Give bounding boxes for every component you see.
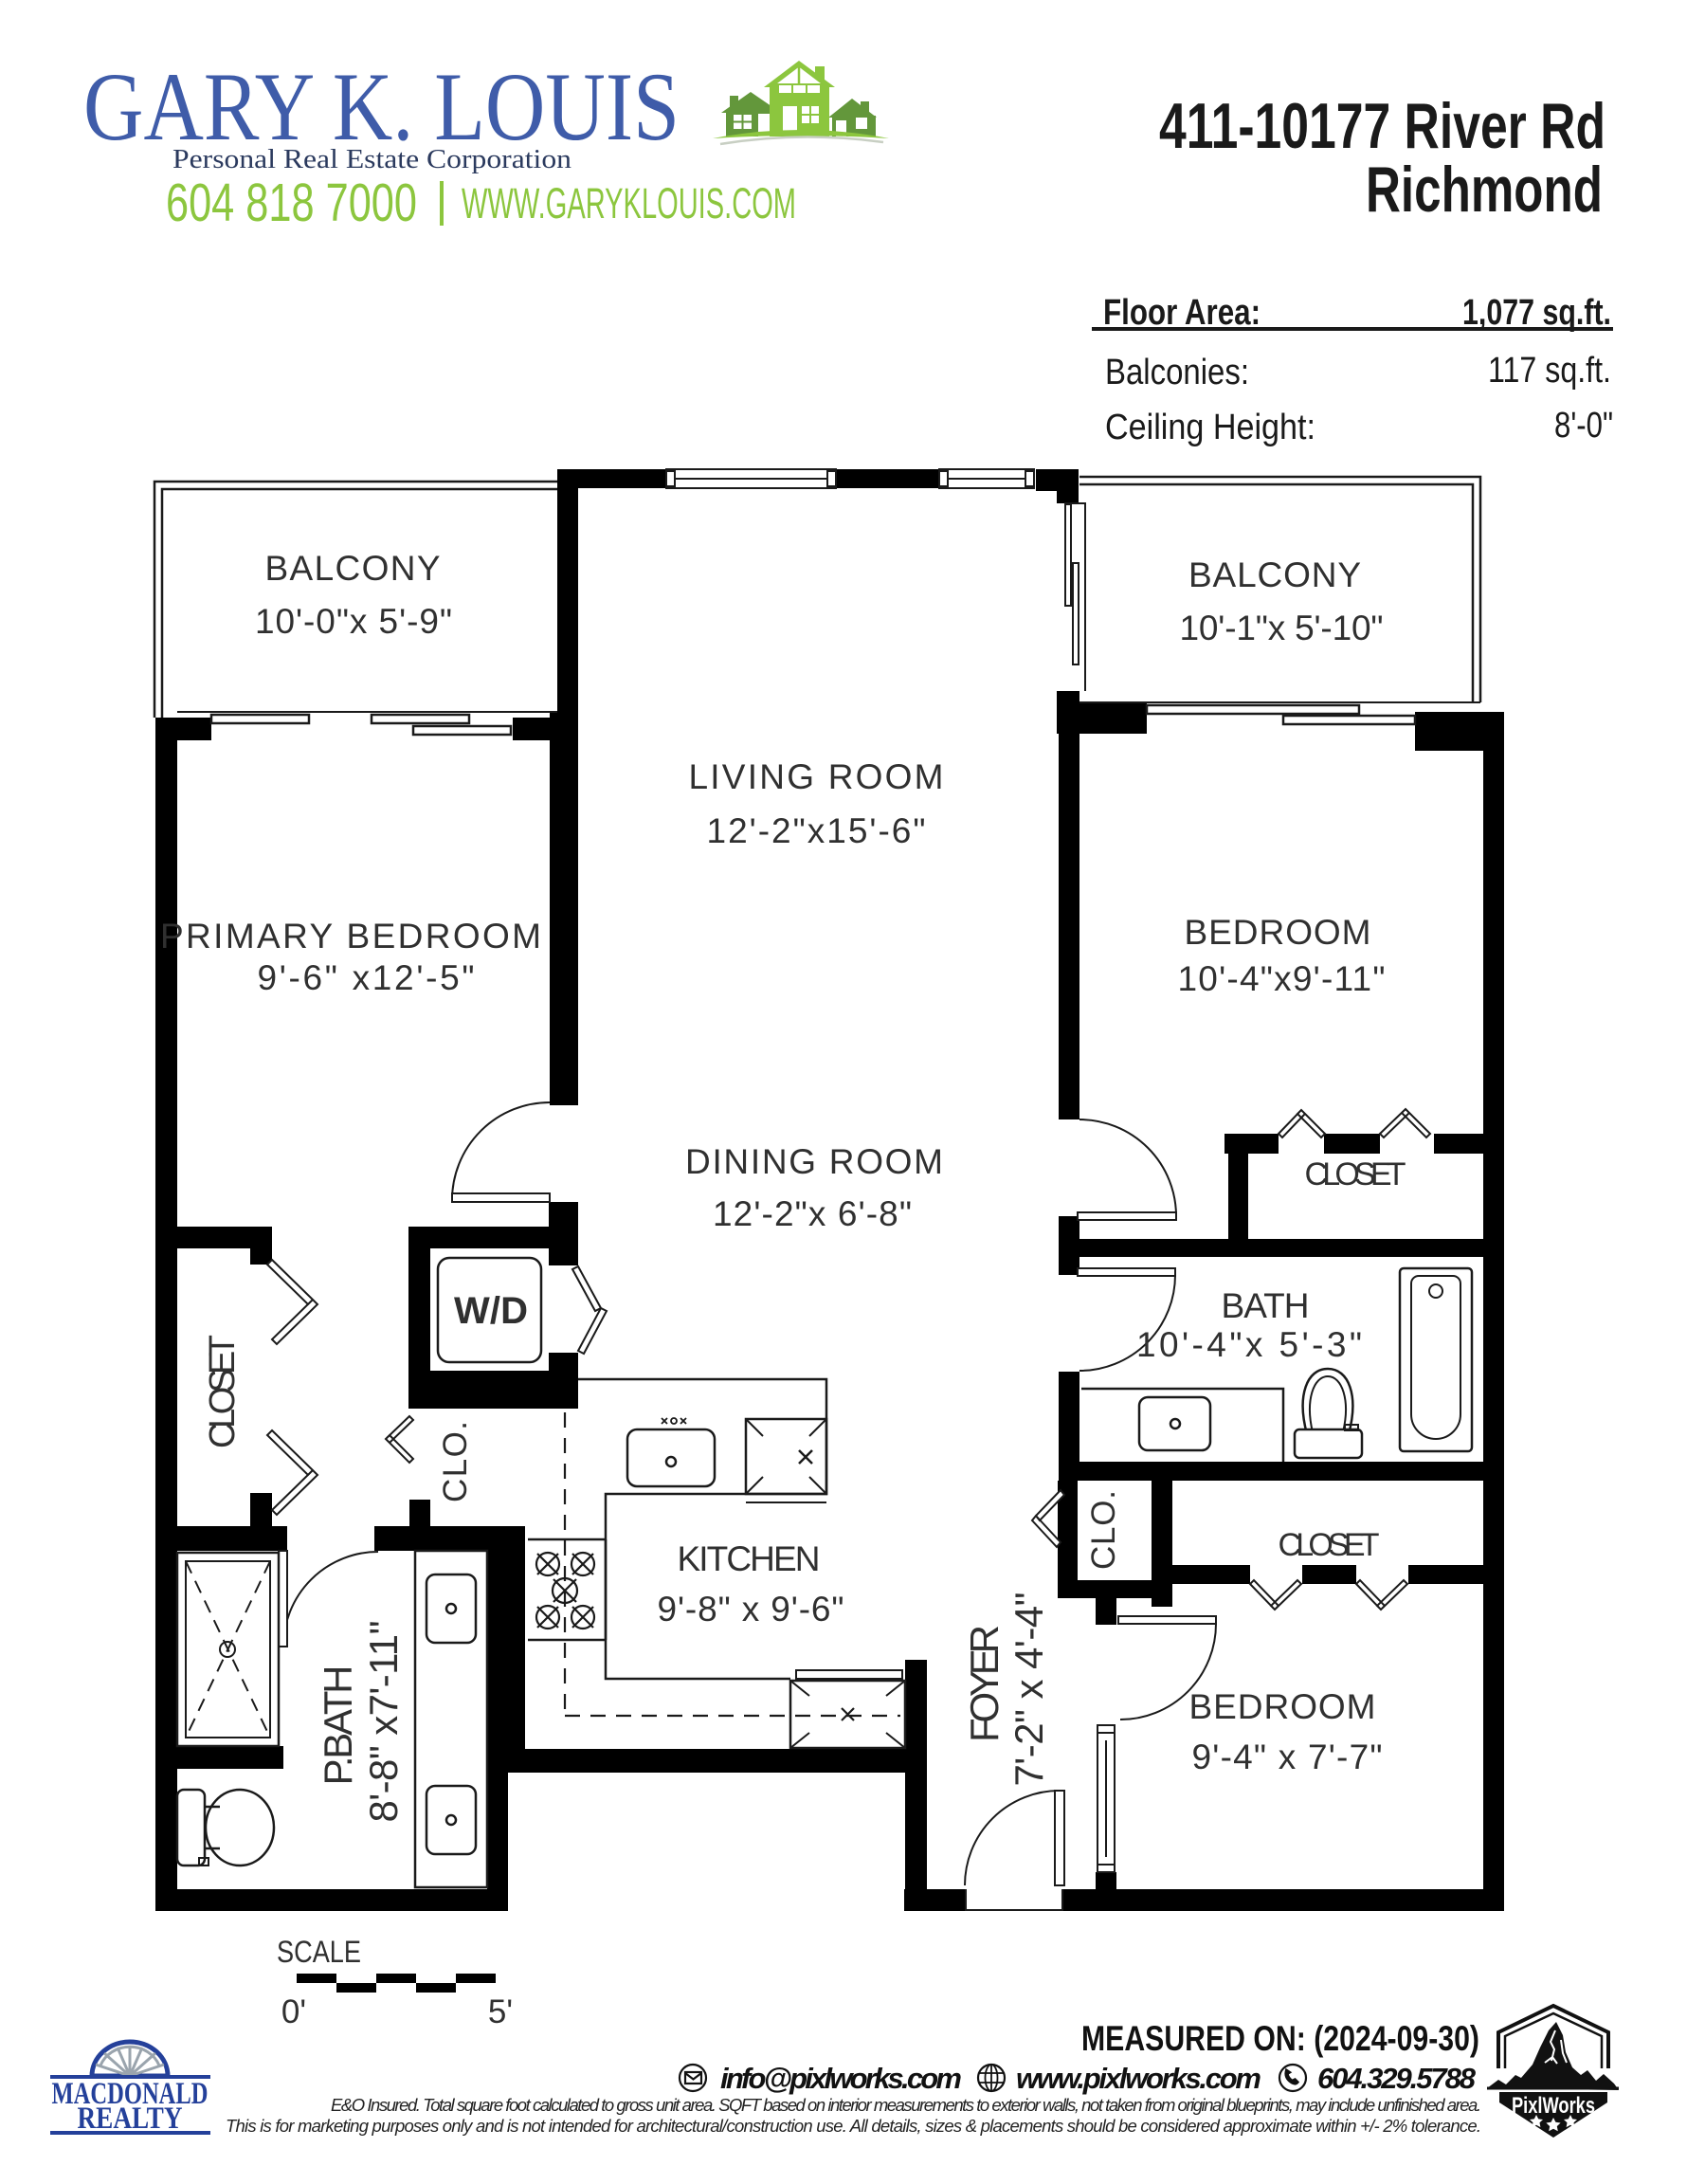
- svg-text:0': 0': [281, 1993, 306, 2030]
- svg-text:W/D: W/D: [454, 1290, 528, 1332]
- svg-text:9'-6" x12'-5": 9'-6" x12'-5": [258, 958, 475, 997]
- svg-text:117 sq.ft.: 117 sq.ft.: [1488, 351, 1611, 391]
- svg-text:DINING ROOM: DINING ROOM: [685, 1142, 943, 1181]
- svg-text:Personal Real Estate Corporati: Personal Real Estate Corporation: [172, 144, 572, 174]
- svg-text:MEASURED ON: (2024-09-30): MEASURED ON: (2024-09-30): [1081, 2019, 1479, 2058]
- svg-text:9'-4" x 7'-7": 9'-4" x 7'-7": [1192, 1738, 1383, 1776]
- svg-text:9'-8" x 9'-6": 9'-8" x 9'-6": [658, 1590, 844, 1629]
- svg-text:5': 5': [488, 1993, 513, 2030]
- svg-text:CLO.: CLO.: [1085, 1490, 1122, 1570]
- svg-text:KITCHEN: KITCHEN: [678, 1539, 821, 1578]
- svg-text:BEDROOM: BEDROOM: [1189, 1687, 1376, 1726]
- svg-text:Floor Area:: Floor Area:: [1103, 293, 1261, 333]
- svg-text:BEDROOM: BEDROOM: [1185, 913, 1371, 952]
- svg-text:10'-4"x9'-11": 10'-4"x9'-11": [1178, 959, 1386, 998]
- svg-text:FOYER: FOYER: [962, 1625, 1007, 1742]
- svg-text:CLOSET: CLOSET: [1305, 1156, 1406, 1192]
- svg-text:SCALE: SCALE: [277, 1935, 361, 1969]
- svg-text:10'-0"x 5'-9": 10'-0"x 5'-9": [255, 602, 452, 641]
- svg-text:P.BATH: P.BATH: [316, 1665, 360, 1786]
- svg-text:10'-4"x 5'-3": 10'-4"x 5'-3": [1136, 1325, 1362, 1364]
- svg-text:WWW.GARYKLOUIS.COM: WWW.GARYKLOUIS.COM: [462, 179, 796, 227]
- svg-text:CLOSET: CLOSET: [203, 1335, 243, 1448]
- svg-text:Ceiling Height:: Ceiling Height:: [1105, 408, 1315, 447]
- svg-text:PixlWorks: PixlWorks: [1512, 2093, 1595, 2119]
- svg-text:CLOSET: CLOSET: [1279, 1527, 1380, 1563]
- svg-text:12'-2"x15'-6": 12'-2"x15'-6": [707, 811, 926, 850]
- svg-text:8'-0": 8'-0": [1554, 406, 1613, 446]
- svg-text:8'-8" x7'-11": 8'-8" x7'-11": [361, 1621, 406, 1823]
- svg-text:7'-2" x 4'-4": 7'-2" x 4'-4": [1007, 1592, 1051, 1787]
- svg-text:REALTY: REALTY: [78, 2102, 183, 2136]
- svg-text:604.329.5788: 604.329.5788: [1317, 2062, 1477, 2095]
- svg-text:Richmond: Richmond: [1366, 154, 1603, 226]
- svg-text:10'-1"x 5'-10": 10'-1"x 5'-10": [1180, 609, 1384, 647]
- svg-text:info@pixlworks.com: info@pixlworks.com: [720, 2062, 962, 2095]
- svg-text:411-10177 River Rd: 411-10177 River Rd: [1159, 90, 1605, 162]
- svg-text:604 818 7000: 604 818 7000: [166, 173, 417, 233]
- svg-text:1,077 sq.ft.: 1,077 sq.ft.: [1462, 293, 1611, 333]
- svg-text:CLO.: CLO.: [437, 1421, 474, 1502]
- svg-text:BALCONY: BALCONY: [265, 549, 441, 588]
- svg-text:www.pixlworks.com: www.pixlworks.com: [1016, 2062, 1261, 2095]
- svg-text:BALCONY: BALCONY: [1188, 555, 1361, 594]
- svg-text:This is for marketing purposes: This is for marketing purposes only and …: [226, 2116, 1481, 2136]
- svg-text:12'-2"x 6'-8": 12'-2"x 6'-8": [713, 1194, 912, 1233]
- svg-text:LIVING ROOM: LIVING ROOM: [689, 757, 944, 796]
- svg-text:PRIMARY BEDROOM: PRIMARY BEDROOM: [160, 917, 541, 955]
- svg-text:E&O Insured. Total square foo: E&O Insured. Total square foot calculate…: [331, 2095, 1481, 2115]
- svg-text:Balconies:: Balconies:: [1105, 353, 1249, 392]
- svg-text:BATH: BATH: [1222, 1286, 1310, 1325]
